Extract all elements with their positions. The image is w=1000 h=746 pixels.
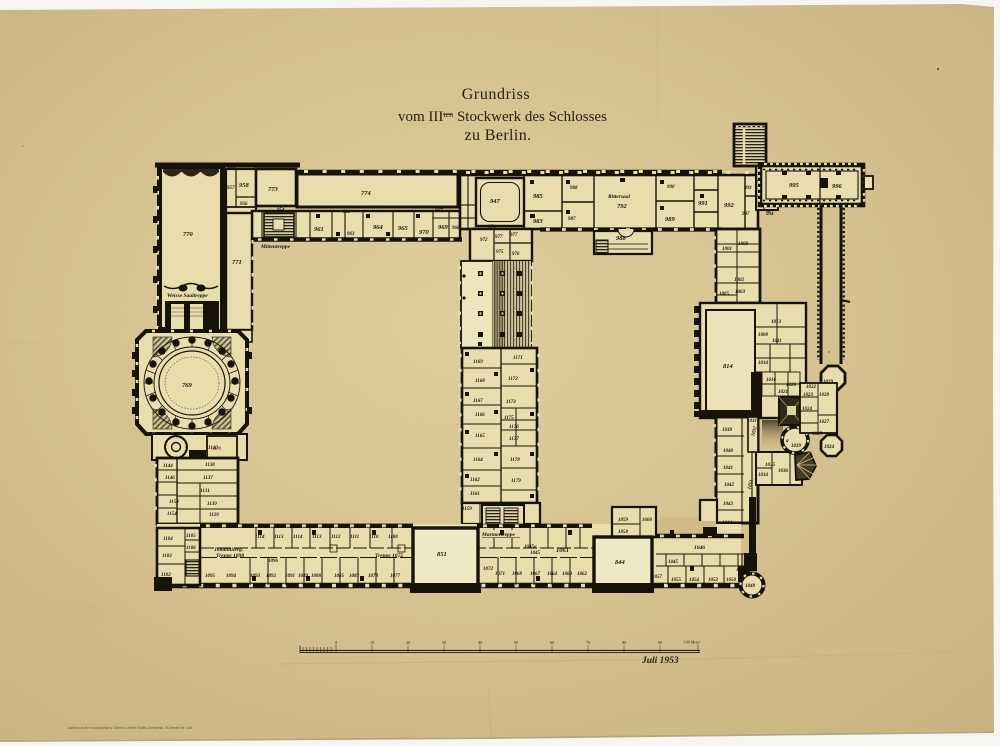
svg-text:983: 983 xyxy=(533,218,544,225)
svg-text:1161: 1161 xyxy=(470,492,480,497)
svg-text:991: 991 xyxy=(698,200,708,207)
svg-text:1008: 1008 xyxy=(758,333,769,338)
svg-text:10: 10 xyxy=(370,640,374,645)
svg-text:1144: 1144 xyxy=(163,464,173,469)
svg-text:1138: 1138 xyxy=(205,463,215,468)
svg-text:1001: 1001 xyxy=(722,247,732,252)
svg-text:Treppe 1075: Treppe 1075 xyxy=(375,553,403,559)
svg-text:1022: 1022 xyxy=(806,385,817,390)
svg-text:1057: 1057 xyxy=(652,575,663,580)
svg-text:1045: 1045 xyxy=(668,560,679,565)
svg-text:60: 60 xyxy=(550,640,554,645)
svg-text:1159: 1159 xyxy=(462,507,472,512)
svg-text:1043: 1043 xyxy=(723,502,734,507)
svg-text:1027: 1027 xyxy=(819,420,830,425)
svg-text:954: 954 xyxy=(277,208,285,213)
svg-text:1166: 1166 xyxy=(475,413,485,418)
svg-text:1023: 1023 xyxy=(803,393,814,398)
svg-text:975: 975 xyxy=(496,250,504,255)
svg-text:844: 844 xyxy=(615,559,626,566)
svg-text:1153: 1153 xyxy=(169,500,179,505)
svg-text:1052: 1052 xyxy=(708,578,719,583)
svg-text:1092: 1092 xyxy=(266,574,277,579)
svg-text:1129: 1129 xyxy=(209,513,219,518)
svg-text:1050: 1050 xyxy=(726,578,737,583)
svg-text:1173: 1173 xyxy=(506,400,516,405)
svg-text:977: 977 xyxy=(510,233,518,238)
svg-text:1042: 1042 xyxy=(724,483,735,488)
svg-text:770: 770 xyxy=(183,231,194,238)
svg-text:0: 0 xyxy=(335,640,337,645)
svg-text:1104: 1104 xyxy=(163,537,173,542)
svg-text:965: 965 xyxy=(398,225,409,232)
svg-text:773: 773 xyxy=(268,186,279,193)
svg-text:1113: 1113 xyxy=(312,535,322,540)
svg-text:1106: 1106 xyxy=(186,546,196,551)
svg-text:963: 963 xyxy=(347,232,355,237)
svg-text:1036: 1036 xyxy=(778,469,789,474)
svg-text:1165: 1165 xyxy=(475,434,485,439)
svg-text:1114: 1114 xyxy=(255,535,265,540)
svg-text:1062: 1062 xyxy=(577,572,588,577)
svg-text:769: 769 xyxy=(182,382,193,389)
svg-text:774: 774 xyxy=(361,190,372,197)
svg-text:zu Berlin.: zu Berlin. xyxy=(464,127,531,144)
svg-text:1172: 1172 xyxy=(508,377,518,382)
svg-text:1169: 1169 xyxy=(473,360,483,365)
svg-text:1088: 1088 xyxy=(311,574,322,579)
svg-text:1168: 1168 xyxy=(475,379,485,384)
svg-text:1140: 1140 xyxy=(208,446,218,451)
svg-text:997: 997 xyxy=(742,212,750,217)
svg-text:Rittersaal: Rittersaal xyxy=(607,194,630,200)
svg-text:1110: 1110 xyxy=(369,535,379,540)
svg-text:80: 80 xyxy=(622,640,626,645)
svg-text:1085: 1085 xyxy=(334,574,345,579)
svg-text:1094: 1094 xyxy=(226,574,237,579)
svg-text:50: 50 xyxy=(514,640,518,645)
svg-text:1060: 1060 xyxy=(642,518,653,523)
svg-text:1071: 1071 xyxy=(495,572,505,577)
svg-text:1072: 1072 xyxy=(483,567,494,572)
svg-text:960: 960 xyxy=(343,210,351,215)
svg-text:1096: 1096 xyxy=(268,559,279,564)
svg-text:40: 40 xyxy=(478,640,482,645)
svg-text:961: 961 xyxy=(314,226,324,233)
svg-text:1139: 1139 xyxy=(207,502,217,507)
svg-text:1025: 1025 xyxy=(812,432,823,437)
svg-text:Juli 1953: Juli 1953 xyxy=(641,656,679,666)
svg-text:1077: 1077 xyxy=(390,574,401,579)
svg-text:90: 90 xyxy=(658,640,662,645)
svg-text:1039: 1039 xyxy=(791,444,802,449)
svg-text:1035: 1035 xyxy=(765,463,776,468)
svg-text:1064: 1064 xyxy=(547,572,558,577)
svg-text:1031: 1031 xyxy=(747,419,757,424)
svg-text:1146: 1146 xyxy=(165,476,175,481)
svg-text:973: 973 xyxy=(488,225,496,230)
svg-text:1041: 1041 xyxy=(723,466,733,471)
svg-text:957: 957 xyxy=(227,186,235,191)
svg-text:771: 771 xyxy=(232,259,242,266)
svg-text:989: 989 xyxy=(665,216,676,223)
svg-text:1113: 1113 xyxy=(274,535,284,540)
svg-text:1021: 1021 xyxy=(778,390,788,395)
svg-text:1034: 1034 xyxy=(758,473,769,478)
svg-text:70: 70 xyxy=(586,640,590,645)
svg-text:1045: 1045 xyxy=(530,551,541,556)
svg-text:1105: 1105 xyxy=(186,534,196,539)
svg-text:Grundriss: Grundriss xyxy=(462,86,531,103)
svg-text:1002: 1002 xyxy=(734,278,745,283)
svg-text:985: 985 xyxy=(533,193,544,200)
svg-text:1040: 1040 xyxy=(723,449,734,454)
svg-text:1013: 1013 xyxy=(771,320,782,325)
svg-text:Mittentreppe: Mittentreppe xyxy=(260,244,291,250)
svg-text:Marmortreppe: Marmortreppe xyxy=(481,532,516,538)
svg-text:1164: 1164 xyxy=(473,458,483,463)
svg-text:992: 992 xyxy=(724,202,735,209)
svg-text:1011: 1011 xyxy=(772,339,782,344)
svg-text:1054: 1054 xyxy=(689,578,700,583)
svg-text:1175: 1175 xyxy=(504,416,514,421)
svg-text:958: 958 xyxy=(239,182,250,189)
svg-text:1068: 1068 xyxy=(512,572,523,577)
svg-text:964: 964 xyxy=(373,224,384,231)
svg-text:1083: 1083 xyxy=(349,574,360,579)
svg-text:988: 988 xyxy=(570,186,578,191)
svg-text:1095: 1095 xyxy=(205,574,216,579)
svg-text:1000: 1000 xyxy=(738,242,749,247)
svg-text:1029: 1029 xyxy=(823,380,834,385)
svg-text:1061: 1061 xyxy=(556,547,569,554)
svg-text:996: 996 xyxy=(832,183,843,190)
svg-text:vom IIIten Stockwerk des Schlo: vom IIIten Stockwerk des Schlosses xyxy=(398,109,607,125)
svg-text:1131: 1131 xyxy=(200,489,210,494)
svg-text:1111: 1111 xyxy=(350,535,359,540)
svg-text:990: 990 xyxy=(667,185,675,190)
svg-text:792: 792 xyxy=(617,203,628,210)
svg-text:1179: 1179 xyxy=(511,479,521,484)
svg-text:100 Meter: 100 Meter xyxy=(684,640,701,645)
svg-text:976: 976 xyxy=(512,252,520,257)
svg-text:1046: 1046 xyxy=(694,545,705,551)
svg-text:1091: 1091 xyxy=(285,574,295,579)
svg-text:30: 30 xyxy=(442,640,446,645)
svg-text:1178: 1178 xyxy=(510,458,520,463)
svg-text:970: 970 xyxy=(419,229,430,236)
svg-text:1114: 1114 xyxy=(293,535,303,540)
svg-text:1063: 1063 xyxy=(562,572,573,577)
svg-text:1014: 1014 xyxy=(758,361,769,366)
svg-text:987: 987 xyxy=(568,217,576,222)
svg-text:956: 956 xyxy=(240,202,248,207)
svg-text:1016: 1016 xyxy=(766,378,777,383)
svg-text:1058: 1058 xyxy=(618,530,629,535)
svg-text:1078: 1078 xyxy=(368,574,379,579)
svg-text:1024: 1024 xyxy=(824,445,835,450)
svg-text:967: 967 xyxy=(435,209,443,214)
svg-text:994: 994 xyxy=(766,212,774,217)
svg-text:1167: 1167 xyxy=(473,399,483,404)
svg-text:1003: 1003 xyxy=(735,290,746,295)
svg-text:Weisse Saaltreppe: Weisse Saaltreppe xyxy=(167,293,208,299)
svg-text:1059: 1059 xyxy=(618,518,629,523)
svg-text:972: 972 xyxy=(480,238,488,243)
svg-text:1162: 1162 xyxy=(470,478,480,483)
svg-text:1108: 1108 xyxy=(388,535,398,540)
svg-text:1024: 1024 xyxy=(802,407,813,412)
svg-text:993: 993 xyxy=(744,186,752,191)
svg-text:1048: 1048 xyxy=(745,584,756,589)
svg-text:1103: 1103 xyxy=(162,554,172,559)
svg-text:1177: 1177 xyxy=(509,437,519,442)
svg-text:1137: 1137 xyxy=(203,476,213,481)
svg-text:Treppe 1098: Treppe 1098 xyxy=(216,553,244,559)
svg-text:Lichtdruck der Kunstanstalt w.: Lichtdruck der Kunstanstalt w. Dietrich,… xyxy=(68,726,192,730)
svg-text:969: 969 xyxy=(438,224,449,231)
svg-text:1028: 1028 xyxy=(819,393,830,398)
svg-text:20: 20 xyxy=(406,640,410,645)
svg-text:995: 995 xyxy=(789,182,800,189)
svg-text:1055: 1055 xyxy=(671,578,682,583)
svg-text:977: 977 xyxy=(495,235,503,240)
svg-text:814: 814 xyxy=(723,363,734,370)
svg-text:851: 851 xyxy=(437,551,447,558)
svg-text:1176: 1176 xyxy=(509,425,519,430)
svg-text:1112: 1112 xyxy=(331,535,341,540)
svg-text:1039: 1039 xyxy=(722,428,733,433)
svg-text:1045a: 1045a xyxy=(524,545,537,550)
svg-text:1171: 1171 xyxy=(513,356,523,361)
svg-text:1020: 1020 xyxy=(786,383,797,388)
svg-text:947: 947 xyxy=(490,198,501,205)
svg-text:1154: 1154 xyxy=(167,512,177,517)
svg-text:1005: 1005 xyxy=(719,292,730,297)
